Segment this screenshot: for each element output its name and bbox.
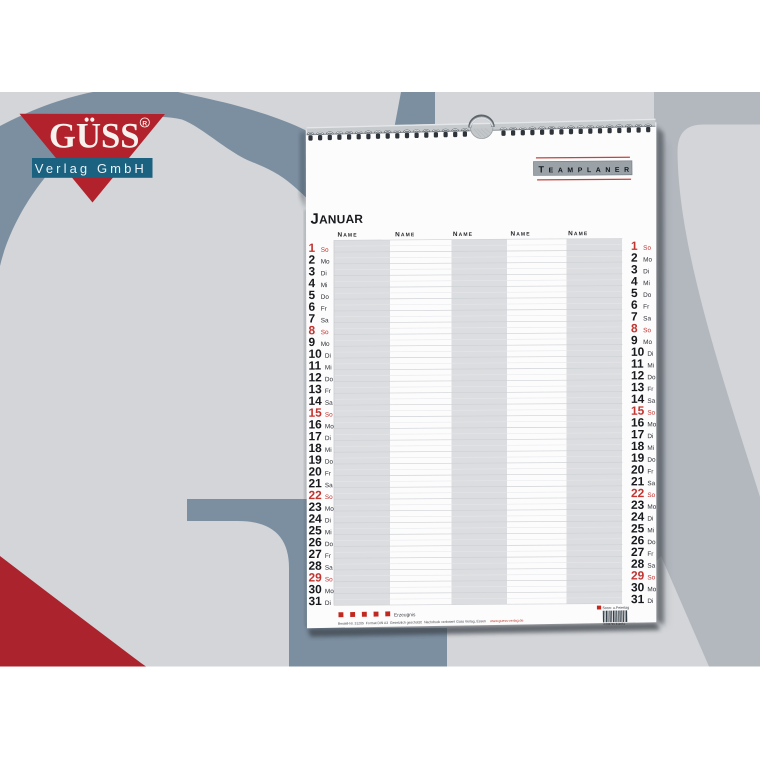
svg-text:So: So — [325, 576, 333, 583]
svg-text:So: So — [647, 574, 655, 581]
svg-text:Fr: Fr — [325, 388, 332, 395]
svg-text:Mi: Mi — [325, 364, 332, 371]
svg-text:Sa: Sa — [325, 400, 333, 407]
svg-text:Do: Do — [643, 292, 652, 299]
svg-text:Mo: Mo — [647, 421, 656, 428]
svg-text:Mo: Mo — [643, 339, 652, 346]
svg-text:Di: Di — [647, 351, 653, 358]
svg-text:Mo: Mo — [647, 586, 656, 593]
svg-text:NAME: NAME — [511, 230, 531, 237]
svg-text:Sa: Sa — [647, 480, 655, 487]
svg-text:31: 31 — [309, 594, 323, 608]
svg-text:So: So — [325, 494, 333, 501]
svg-text:Erzeugnis: Erzeugnis — [394, 612, 416, 618]
svg-text:So: So — [325, 412, 333, 419]
svg-text:4 002725 312051: 4 002725 312051 — [603, 622, 625, 626]
svg-text:Fr: Fr — [325, 553, 332, 560]
svg-text:Mo: Mo — [321, 258, 330, 265]
svg-text:R: R — [142, 121, 147, 128]
svg-text:Mo: Mo — [325, 588, 334, 595]
svg-text:NAME: NAME — [338, 232, 358, 239]
svg-text:So: So — [321, 329, 329, 336]
svg-text:Fr: Fr — [647, 386, 654, 393]
svg-text:Mi: Mi — [647, 362, 654, 369]
svg-text:Do: Do — [321, 294, 330, 301]
svg-text:Mi: Mi — [321, 282, 328, 289]
svg-text:Do: Do — [647, 374, 656, 381]
svg-text:Sa: Sa — [643, 315, 651, 322]
svg-text:Do: Do — [647, 457, 656, 464]
svg-text:Sa: Sa — [647, 398, 655, 405]
svg-text:Di: Di — [647, 598, 653, 605]
svg-text:So: So — [643, 327, 651, 334]
svg-text:Mi: Mi — [325, 447, 332, 454]
svg-text:Mi: Mi — [647, 445, 654, 452]
svg-text:JANUAR: JANUAR — [310, 210, 363, 228]
svg-text:Do: Do — [325, 541, 334, 548]
svg-text:So: So — [647, 410, 655, 417]
svg-text:GÜSS: GÜSS — [49, 116, 140, 156]
svg-text:Mo: Mo — [647, 504, 656, 511]
svg-text:Fr: Fr — [647, 468, 654, 475]
svg-text:Sa: Sa — [325, 565, 333, 572]
svg-text:Sa: Sa — [321, 317, 329, 324]
svg-text:31: 31 — [631, 592, 645, 606]
svg-text:Mo: Mo — [325, 423, 334, 430]
svg-text:Mi: Mi — [643, 280, 650, 287]
svg-text:Di: Di — [325, 600, 331, 607]
svg-text:Di: Di — [325, 518, 331, 525]
svg-text:Fr: Fr — [643, 304, 650, 311]
svg-text:Verlag GmbH: Verlag GmbH — [35, 161, 144, 176]
svg-text:Sa: Sa — [647, 563, 655, 570]
svg-text:Di: Di — [647, 433, 653, 440]
svg-text:So: So — [643, 245, 651, 252]
svg-text:Di: Di — [321, 270, 327, 277]
svg-text:Sa: Sa — [325, 482, 333, 489]
svg-text:Sonn- u.Feiertag: Sonn- u.Feiertag — [602, 606, 629, 610]
svg-text:So: So — [321, 247, 329, 254]
svg-text:Mi: Mi — [647, 527, 654, 534]
svg-text:Mo: Mo — [325, 506, 334, 513]
svg-text:Do: Do — [325, 376, 334, 383]
svg-text:Mo: Mo — [321, 341, 330, 348]
svg-text:Mi: Mi — [325, 529, 332, 536]
svg-text:Di: Di — [643, 268, 649, 275]
svg-text:NAME: NAME — [568, 230, 588, 237]
svg-text:Di: Di — [647, 516, 653, 523]
svg-text:Di: Di — [325, 353, 331, 360]
svg-text:So: So — [647, 492, 655, 499]
svg-text:www.guess-verlag.de: www.guess-verlag.de — [490, 619, 523, 624]
svg-text:Di: Di — [325, 435, 331, 442]
svg-text:NAME: NAME — [395, 231, 415, 238]
svg-text:Fr: Fr — [647, 551, 654, 558]
svg-text:Fr: Fr — [325, 470, 332, 477]
svg-text:Fr: Fr — [321, 306, 328, 313]
svg-text:Do: Do — [325, 459, 334, 466]
svg-text:Do: Do — [647, 539, 656, 546]
svg-text:NAME: NAME — [453, 231, 473, 238]
svg-text:Mo: Mo — [643, 257, 652, 264]
